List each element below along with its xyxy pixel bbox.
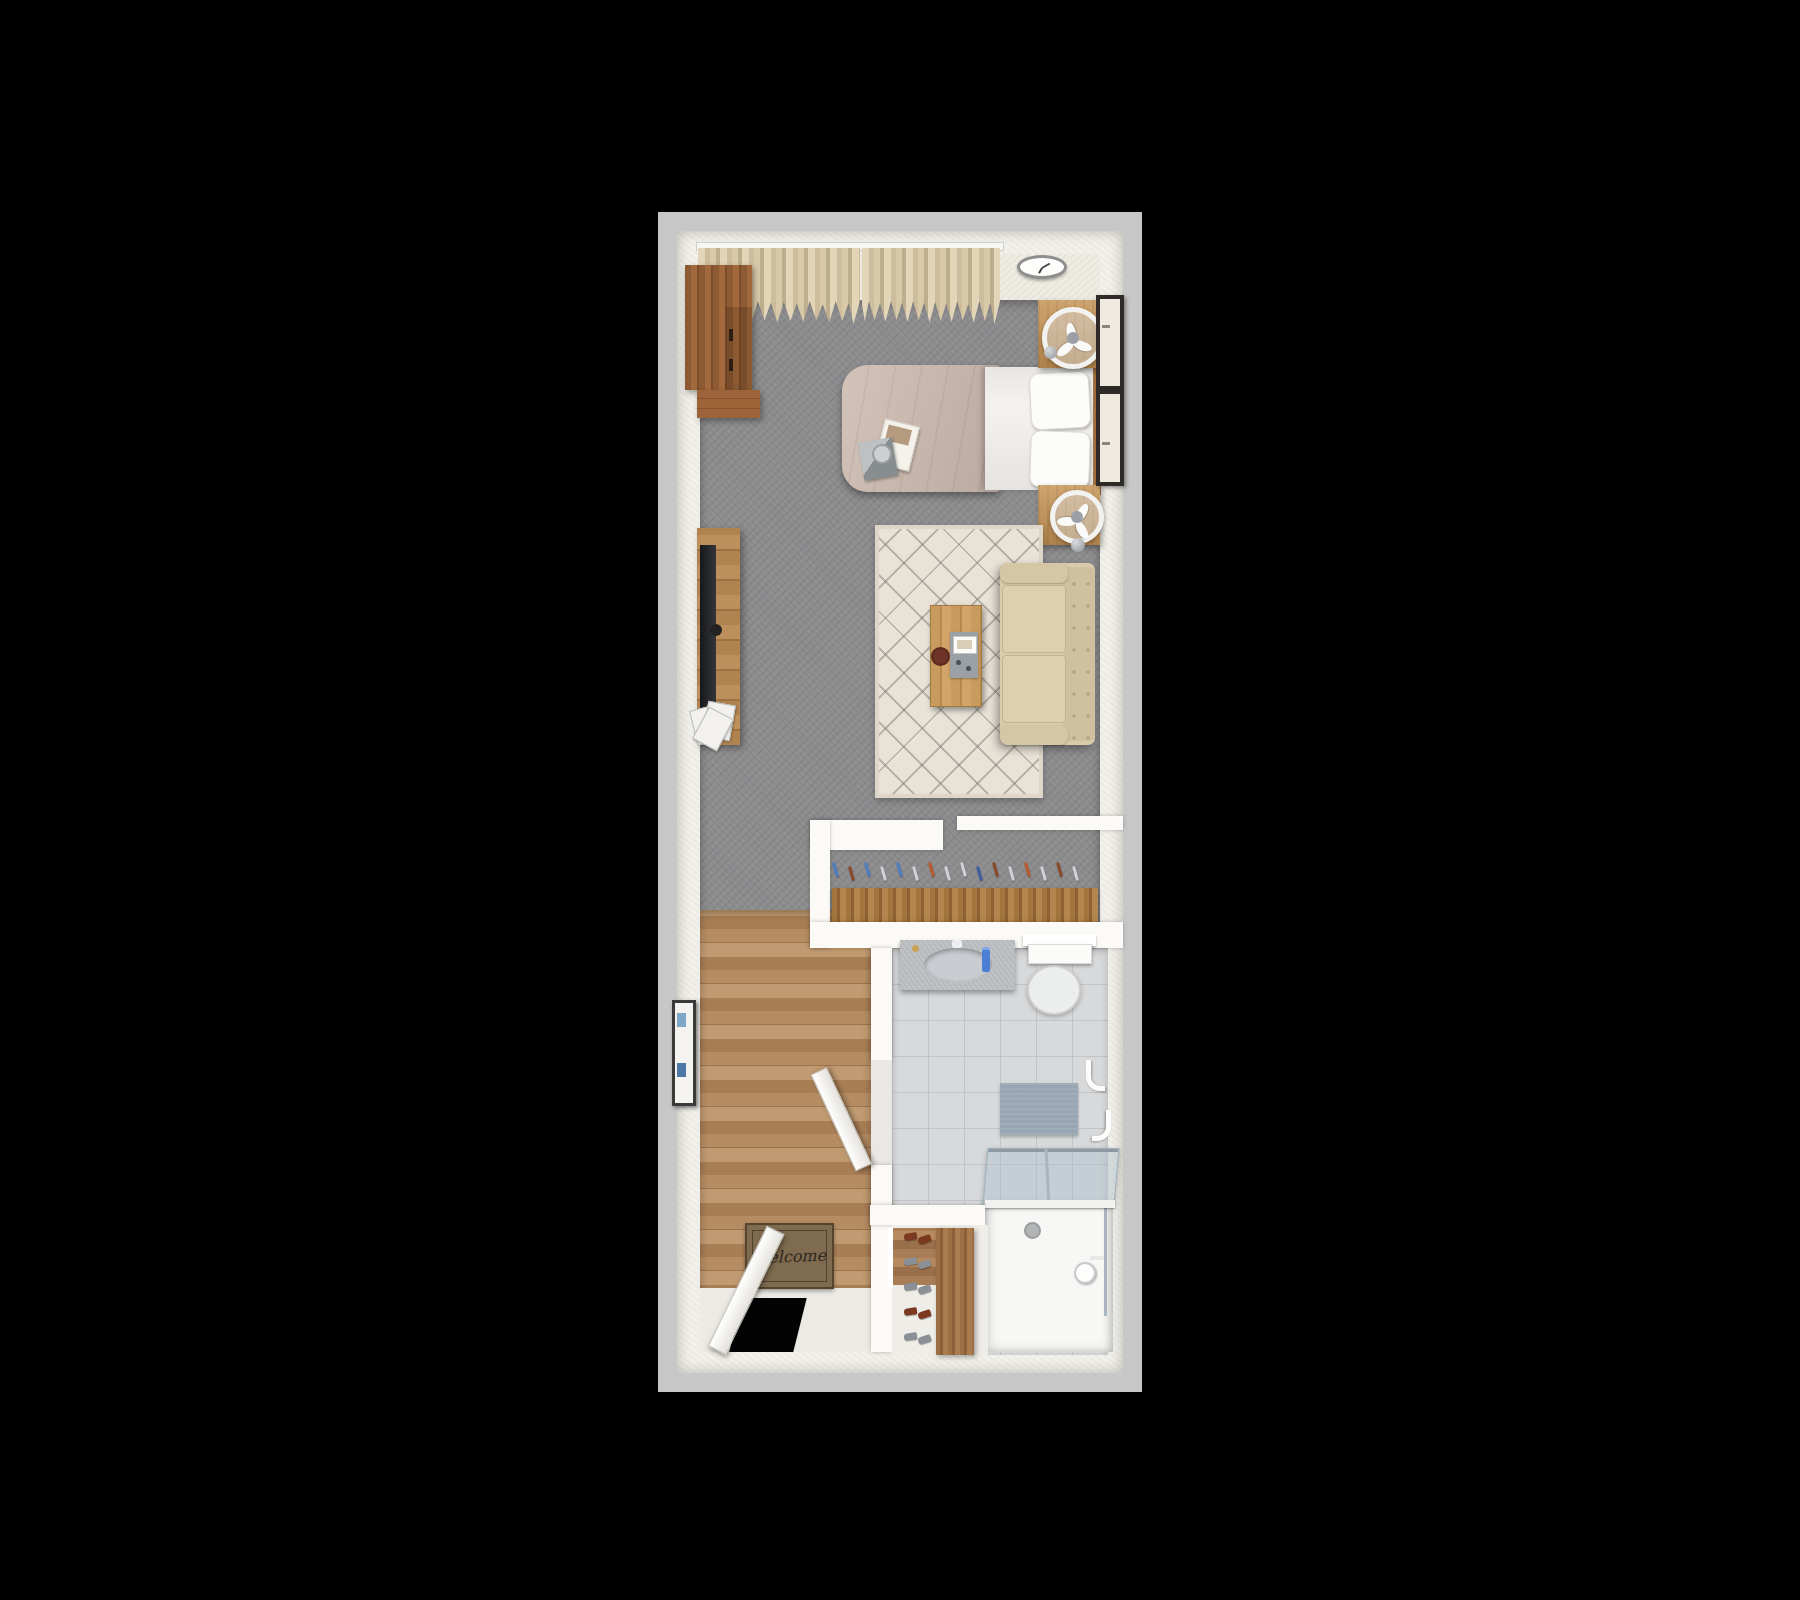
clothes-hanger [896, 862, 903, 877]
clothes-hanger [1056, 862, 1063, 877]
sofa-armrest [1000, 725, 1068, 745]
wardrobe-handle [729, 359, 733, 371]
clothes-hanger [960, 862, 967, 877]
loveseat-sofa [1000, 563, 1095, 745]
wardrobe-door-panel [725, 307, 752, 390]
sofa-seat-cushion [1002, 655, 1066, 723]
clothes-hanger [1072, 866, 1079, 881]
clothes-hanger [1008, 866, 1015, 881]
tray-knob [966, 666, 971, 671]
fan-ball-weight [1071, 538, 1085, 552]
wardrobe-drawers [697, 390, 760, 418]
scene-canvas: Welcome [0, 0, 1800, 1600]
shoe [917, 1234, 932, 1245]
tray-knob [956, 660, 961, 665]
clothes-hanger [992, 862, 999, 877]
toilet-tank [1028, 944, 1092, 964]
floor-plan: Welcome [658, 212, 1142, 1392]
closet-hangers [834, 862, 1096, 888]
sofa-seat-cushion [1002, 585, 1066, 653]
toilet-bowl [1027, 965, 1081, 1015]
clothes-hanger [880, 866, 887, 881]
soap-dish [912, 945, 919, 952]
shower-glass-door [982, 1148, 1119, 1206]
shoe [904, 1307, 918, 1316]
vanity-counter [900, 940, 1015, 990]
wall-clock [1017, 255, 1067, 279]
closet-wall-top-right [957, 816, 1123, 830]
serving-tray [950, 632, 978, 678]
shower-side-glass [1104, 1206, 1107, 1316]
coffee-mug [931, 647, 950, 666]
sofa-back-cushion [1063, 567, 1095, 741]
clothes-hanger [832, 862, 839, 877]
shoe [917, 1284, 932, 1295]
towel-hook [1086, 1060, 1105, 1091]
alcove-wall [870, 1205, 985, 1225]
shoe-rack-bracket [888, 1228, 893, 1288]
clothes-hanger [976, 866, 983, 881]
tv-mount [710, 624, 722, 636]
shoe [904, 1257, 918, 1266]
wall-frame-bottom [1096, 390, 1124, 486]
shoe [917, 1309, 932, 1320]
shoe [904, 1282, 918, 1291]
closet-rod [832, 888, 1098, 922]
shoe-rack [936, 1228, 974, 1355]
tray-card [953, 636, 977, 654]
magazine-rack [691, 699, 739, 749]
toothbrush-cup [982, 950, 990, 972]
clothes-hanger [1024, 862, 1031, 877]
bath-mat [1000, 1083, 1078, 1135]
shower-door-rail [985, 1200, 1115, 1208]
bathroom-doorway [871, 1060, 892, 1165]
clothes-hanger [1040, 866, 1047, 881]
sofa-armrest [1000, 563, 1068, 583]
shoe [917, 1259, 932, 1270]
shoe [917, 1334, 932, 1345]
shower-drain [1024, 1222, 1041, 1239]
pillow [1029, 370, 1092, 430]
table-fan-bottom [1050, 490, 1104, 544]
table-fan-top [1042, 307, 1104, 369]
bathroom-partition-upper [871, 948, 892, 1060]
clothes-hanger [912, 866, 919, 881]
shoe [904, 1332, 918, 1341]
wardrobe-handle [729, 329, 733, 341]
shoe-pairs [904, 1233, 936, 1353]
shoe [904, 1232, 918, 1241]
clothes-hanger [848, 866, 855, 881]
faucet [952, 940, 962, 948]
clothes-hanger [928, 862, 935, 877]
fan-ball-weight [1044, 346, 1057, 359]
clothes-hanger [944, 866, 951, 881]
wall-frame-top [1096, 295, 1124, 390]
pillow [1029, 430, 1091, 489]
hall-wall-art [672, 1000, 696, 1106]
clothes-hanger [864, 862, 871, 877]
cup-on-bed [872, 444, 892, 464]
shower-sprayer [1074, 1262, 1096, 1284]
